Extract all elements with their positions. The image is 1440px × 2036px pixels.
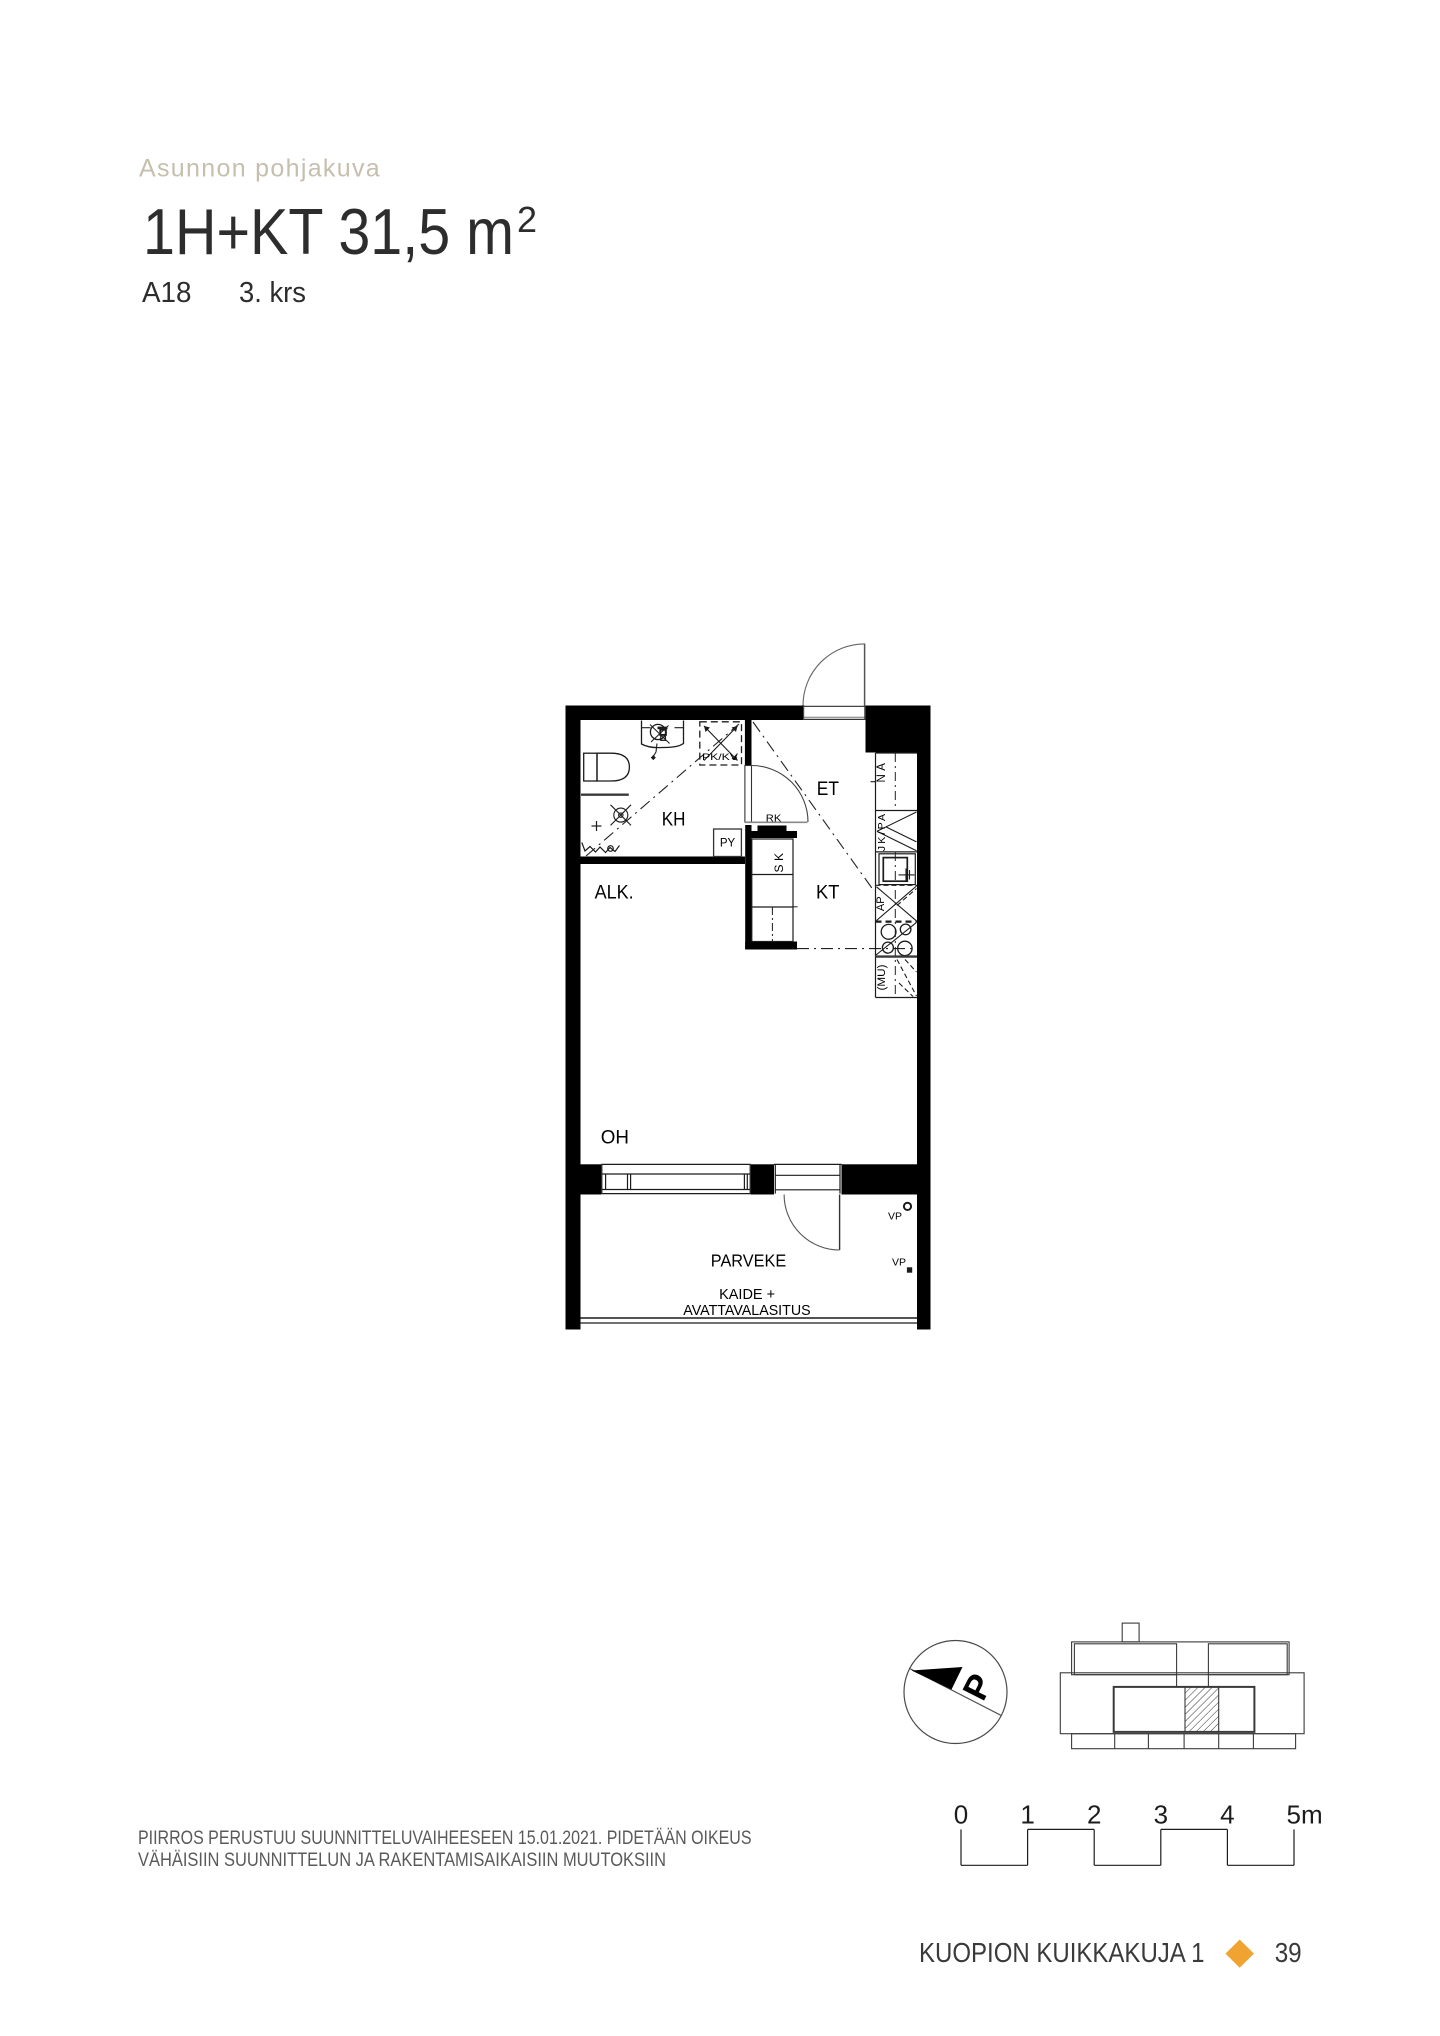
svg-text:VP: VP bbox=[892, 1257, 906, 1269]
svg-text:PK/KV: PK/KV bbox=[702, 752, 739, 763]
svg-text:KT: KT bbox=[816, 882, 839, 904]
svg-text:OH: OH bbox=[601, 1126, 629, 1148]
svg-text:VP: VP bbox=[888, 1211, 902, 1223]
svg-text:1: 1 bbox=[1020, 1800, 1034, 1830]
svg-text:AVATTAVALASITUS: AVATTAVALASITUS bbox=[683, 1302, 810, 1319]
svg-text:(MU): (MU) bbox=[876, 965, 888, 991]
svg-text:Asunnon pohjakuva: Asunnon pohjakuva bbox=[139, 155, 381, 183]
svg-text:3. krs: 3. krs bbox=[239, 277, 306, 309]
svg-text:4: 4 bbox=[1220, 1800, 1234, 1830]
svg-text:VÄHÄISIIN SUUNNITTELUN JA RAKE: VÄHÄISIIN SUUNNITTELUN JA RAKENTAMISAIKA… bbox=[138, 1849, 666, 1871]
svg-text:2: 2 bbox=[517, 199, 537, 240]
svg-text:P: P bbox=[955, 1668, 1000, 1707]
svg-text:PY: PY bbox=[720, 838, 736, 850]
svg-text:5m: 5m bbox=[1287, 1800, 1323, 1830]
svg-text:JK/PA: JK/PA bbox=[876, 812, 888, 851]
svg-text:SK: SK bbox=[772, 849, 786, 872]
svg-text:1H+KT 31,5 m: 1H+KT 31,5 m bbox=[143, 195, 514, 268]
svg-text:RK: RK bbox=[766, 812, 782, 824]
svg-text:KUOPION KUIKKAKUJA 1: KUOPION KUIKKAKUJA 1 bbox=[919, 1937, 1205, 1968]
svg-text:ALK.: ALK. bbox=[595, 881, 634, 903]
svg-text:39: 39 bbox=[1275, 1937, 1302, 1968]
svg-text:PARVEKE: PARVEKE bbox=[711, 1251, 786, 1271]
svg-text:0: 0 bbox=[954, 1800, 968, 1830]
svg-text:NA: NA bbox=[876, 760, 888, 783]
svg-text:ET: ET bbox=[817, 778, 839, 800]
svg-text:KAIDE +: KAIDE + bbox=[719, 1286, 775, 1303]
svg-text:AP: AP bbox=[875, 896, 887, 911]
svg-text:3: 3 bbox=[1154, 1800, 1168, 1830]
svg-text:PIIRROS PERUSTUU SUUNNITTELUVA: PIIRROS PERUSTUU SUUNNITTELUVAIHEESEEN 1… bbox=[138, 1827, 752, 1849]
svg-text:2: 2 bbox=[1087, 1800, 1101, 1830]
svg-text:A18: A18 bbox=[142, 277, 192, 309]
svg-text:KH: KH bbox=[662, 808, 686, 830]
